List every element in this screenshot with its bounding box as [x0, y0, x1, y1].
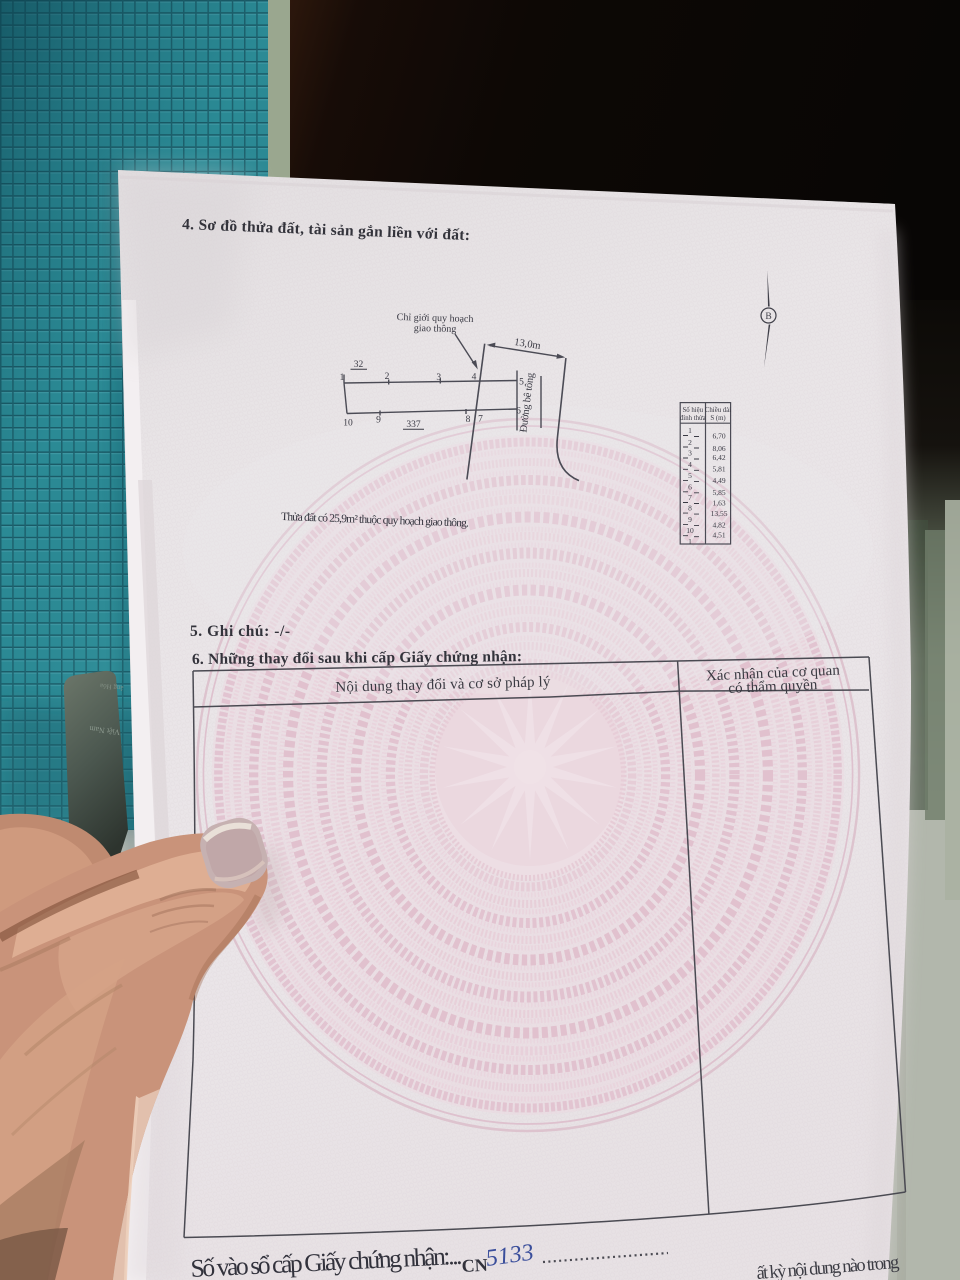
svg-text:3: 3 — [436, 373, 441, 383]
svg-text:4,82: 4,82 — [712, 520, 725, 529]
svg-text:10: 10 — [343, 419, 353, 429]
svg-text:9: 9 — [688, 515, 692, 524]
svg-text:8: 8 — [688, 504, 692, 513]
svg-text:4: 4 — [688, 460, 692, 469]
svg-text:4: 4 — [472, 373, 477, 383]
svg-text:5,81: 5,81 — [712, 465, 725, 474]
svg-text:3: 3 — [688, 449, 692, 458]
svg-text:4,51: 4,51 — [712, 530, 725, 539]
svg-text:1: 1 — [688, 426, 692, 435]
svg-text:1: 1 — [340, 373, 345, 383]
svg-text:6: 6 — [688, 482, 692, 491]
svg-text:2: 2 — [688, 438, 692, 447]
svg-text:7: 7 — [478, 415, 483, 425]
svg-text:2: 2 — [385, 372, 390, 382]
svg-text:10: 10 — [686, 526, 694, 535]
svg-text:Số hiệu: Số hiệu — [683, 407, 704, 414]
svg-text:5. Ghi chú: -/-: 5. Ghi chú: -/- — [190, 623, 290, 640]
svg-text:9: 9 — [376, 416, 381, 426]
svg-text:6: 6 — [516, 407, 521, 417]
svg-text:5: 5 — [519, 378, 524, 388]
svg-text:S (m): S (m) — [710, 415, 725, 422]
svg-text:đỉnh thửa: đỉnh thửa — [680, 415, 706, 422]
svg-text:13,55: 13,55 — [711, 509, 728, 518]
svg-text:Chiều dài: Chiều dài — [705, 407, 731, 414]
svg-text:1: 1 — [688, 537, 692, 546]
svg-text:B: B — [765, 312, 771, 322]
svg-text:5,85: 5,85 — [712, 488, 725, 497]
svg-text:337: 337 — [406, 420, 421, 430]
svg-text:giao thông: giao thông — [414, 323, 457, 335]
svg-text:6,70: 6,70 — [712, 431, 725, 440]
svg-text:8,06: 8,06 — [712, 444, 725, 453]
svg-text:8: 8 — [466, 415, 471, 425]
svg-text:1,63: 1,63 — [712, 498, 725, 507]
svg-text:7: 7 — [688, 493, 692, 502]
svg-text:5: 5 — [688, 471, 692, 480]
svg-text:CN: CN — [461, 1255, 488, 1276]
svg-text:4,49: 4,49 — [712, 476, 725, 485]
svg-text:6,42: 6,42 — [712, 453, 725, 462]
svg-text:32: 32 — [354, 360, 364, 370]
